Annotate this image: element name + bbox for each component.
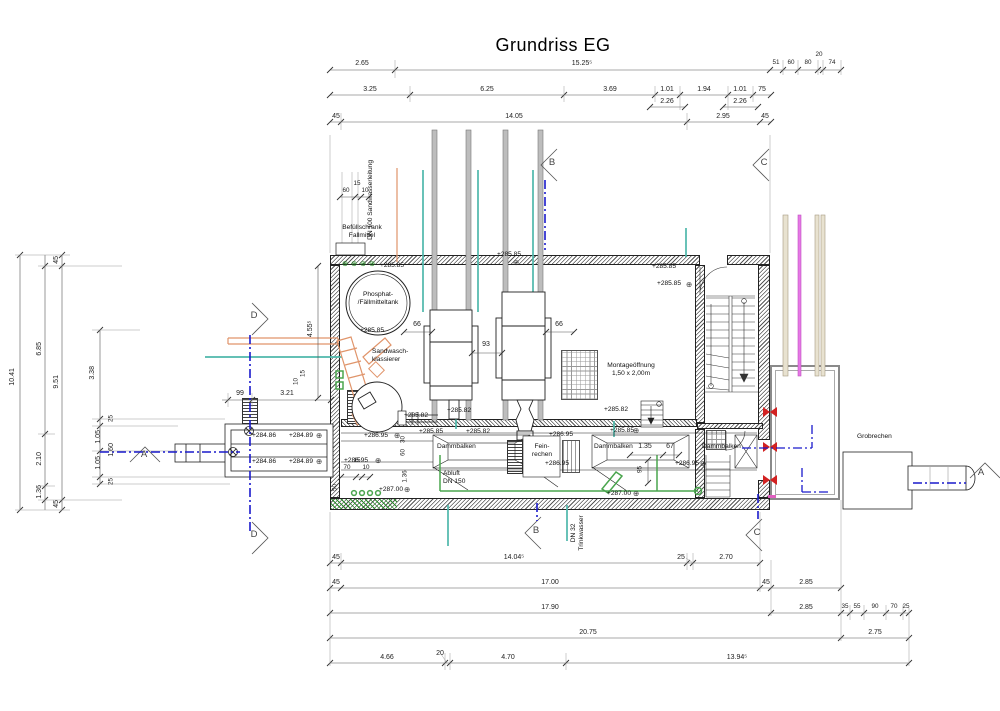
dim-label: 2.85 — [786, 579, 826, 587]
dim-label: 2.26 — [724, 98, 756, 106]
label-sandwaschklassierer: Sandwasch- klassierer — [372, 348, 422, 364]
dim-label: 45 — [326, 113, 346, 121]
dim-label: 74 — [825, 60, 839, 67]
section-marker-b-bottom: B — [528, 526, 544, 536]
elevation-label: +286.95 — [545, 460, 569, 467]
elevation-label: +284.86 — [252, 432, 276, 439]
dim-label: 45 — [326, 579, 346, 587]
dim-label: 25 — [900, 604, 912, 611]
survey-marker-icon: ⊕ — [369, 260, 375, 268]
dim-label: 10.41 — [9, 357, 17, 397]
dim-label: 2.85 — [786, 604, 826, 612]
dim-label: 1.36 — [36, 472, 44, 512]
dim-label: 3.25 — [350, 86, 390, 94]
dim-label: 45 — [755, 113, 775, 121]
dim-label: 70 — [337, 465, 357, 472]
dim-label: 14.04⁵ — [492, 554, 536, 562]
elevation-label: +285.85 — [419, 428, 443, 435]
dim-label: 20.75 — [568, 629, 608, 637]
dim-label: 2.75 — [855, 629, 895, 637]
elevation-label: +285.82 — [466, 428, 490, 435]
sand-washer-machines — [424, 292, 551, 440]
survey-marker-icon: ⊕ — [342, 260, 348, 268]
label-dammbalken-mid: Dammbalken — [594, 443, 644, 451]
dim-label: 45 — [326, 554, 346, 562]
elevation-label: +284.89 — [289, 432, 313, 439]
survey-marker-icon: ⊕ — [513, 259, 519, 267]
survey-marker-icon: ⊕ — [351, 260, 357, 268]
survey-marker-icon: ⊕ — [316, 458, 322, 466]
elevation-label: +285.82 — [604, 406, 628, 413]
dim-label: 60 — [336, 188, 356, 195]
dim-label: 3.38 — [89, 353, 97, 393]
drawing-title: Grundriss EG — [453, 36, 653, 56]
label-sandwasserleitung: DN 100 Sandwasserleitung — [367, 145, 375, 255]
elevation-label: +284.89 — [289, 458, 313, 465]
dim-label: 6.85 — [36, 329, 44, 369]
valve-icons-red — [763, 407, 777, 485]
survey-marker-icon: ⊕ — [360, 260, 366, 268]
label-montageoeffnung: Montageöffnung 1,50 x 2,00m — [596, 362, 666, 378]
dim-label: 14.05 — [494, 113, 534, 121]
survey-marker-icon: ⊕ — [404, 486, 410, 494]
label-dammbalken-left: Dammbalken — [437, 443, 487, 451]
elevation-label: +285.85 — [380, 262, 404, 269]
survey-marker-icon: ⊕ — [394, 432, 400, 440]
label-dammbalken-right: Dammbalken — [702, 443, 752, 451]
dim-label: 67 — [660, 443, 680, 451]
dim-label: 20 — [813, 52, 825, 59]
survey-marker-icon: ⊕ — [686, 281, 692, 289]
elevation-label: +286.95 — [675, 460, 699, 467]
dim-label: 13.94⁵ — [715, 654, 759, 662]
label-feinrechen: Fein- rechen — [527, 443, 557, 459]
elevation-label: +285.85 — [657, 280, 681, 287]
label-abluft: Abluft DN 150 — [443, 470, 475, 486]
dim-label: 6.25 — [467, 86, 507, 94]
dim-label: 80 — [801, 60, 815, 67]
dim-label: 35 — [839, 604, 851, 611]
dim-label: 3.21 — [267, 390, 307, 398]
dim-label: 66 — [407, 321, 427, 329]
dim-label: 2.26 — [651, 98, 683, 106]
dim-label: 2.95 — [703, 113, 743, 121]
dim-label: 90 — [869, 604, 881, 611]
survey-marker-icon: ⊕ — [700, 460, 706, 468]
dim-label: 60 — [784, 60, 798, 67]
survey-marker-icon: ⊕ — [316, 432, 322, 440]
dim-label: 15.25⁵ — [552, 60, 612, 68]
dammbalken-slots — [433, 435, 757, 477]
dim-label: 20 — [430, 650, 450, 658]
dim-label: 25 — [671, 554, 691, 562]
elevation-label: +286.95 — [549, 431, 573, 438]
dim-label: 4.70 — [488, 654, 528, 662]
dim-label: 17.00 — [530, 579, 570, 587]
dim-label: 45 — [53, 484, 61, 524]
label-phosphattank: Phosphat- /Fällmitteltank — [344, 291, 412, 307]
elevation-label: +284.86 — [252, 458, 276, 465]
elevation-label: +285.85 — [610, 427, 634, 434]
survey-marker-icon: ⊕ — [633, 427, 639, 435]
dim-label: 4.66 — [367, 654, 407, 662]
dim-label: 51 — [768, 60, 784, 67]
section-marker-c-bottom: C — [749, 528, 765, 538]
elevation-label: +285.82 — [447, 407, 471, 414]
elevation-label: +286.95 — [364, 432, 388, 439]
survey-marker-icon: ⊕ — [375, 457, 381, 465]
dim-label: 15 — [301, 363, 308, 383]
dim-label: 55 — [851, 604, 863, 611]
dim-label: 4.55⁵ — [307, 309, 315, 349]
elevation-label: +285.82 — [404, 412, 428, 419]
dim-label: 1.60 — [108, 430, 116, 470]
dim-label: 99 — [228, 390, 252, 398]
section-marker-a-left: A — [136, 450, 152, 460]
section-marker-d-bottom: D — [246, 530, 262, 540]
elevation-label: +287.00 — [607, 490, 631, 497]
elevation-label: +285.85 — [360, 327, 384, 334]
dim-label: 75 — [752, 86, 772, 94]
label-trinkwasser: DN 32 Trinkwasser — [570, 505, 586, 561]
label-befuellschrank: Befüllschrank Fallmittel — [330, 224, 394, 240]
dim-label: 45 — [756, 579, 776, 587]
dim-label: 70 — [888, 604, 900, 611]
channel-ladder — [641, 401, 663, 427]
elevation-label: +286.95 — [344, 457, 368, 464]
elevation-label: +285.85 — [652, 263, 676, 270]
elevation-label: +287.00 — [379, 486, 403, 493]
dim-label: 2.70 — [706, 554, 746, 562]
befuellschrank-box — [336, 243, 365, 255]
dim-label: 10 — [356, 465, 376, 472]
dim-label: 60 — [401, 442, 408, 462]
dim-label: 45 — [53, 240, 61, 280]
dim-label: 25 — [109, 465, 116, 497]
section-marker-b-top: B — [544, 158, 560, 168]
label-grobrechen: Grobrechen — [857, 433, 917, 441]
dim-label: 50 — [333, 477, 340, 497]
dim-label: 93 — [476, 341, 496, 349]
annex-pipes — [783, 215, 825, 376]
section-marker-c-top: C — [756, 158, 772, 168]
dim-label: 66 — [549, 321, 569, 329]
grobrechen-channel — [843, 452, 975, 509]
dim-label: 9.51 — [53, 362, 61, 402]
dim-label: 1.01 — [651, 86, 683, 94]
floor-plan-canvas: Grundriss EG 2.65 15.25⁵ 51 60 80 20 74 … — [0, 0, 1000, 711]
dim-label: 17.90 — [530, 604, 570, 612]
survey-marker-icon: ⊕ — [633, 490, 639, 498]
dim-label: 3.69 — [590, 86, 630, 94]
dim-label: 95 — [638, 459, 645, 479]
section-marker-a-right: A — [973, 468, 989, 478]
dim-label: 2.65 — [342, 60, 382, 68]
dim-label: 1.05 — [95, 443, 103, 483]
staircase — [700, 267, 758, 497]
classifier-drum — [352, 382, 402, 432]
section-marker-d-top: D — [246, 311, 262, 321]
dim-label: 1.94 — [684, 86, 724, 94]
